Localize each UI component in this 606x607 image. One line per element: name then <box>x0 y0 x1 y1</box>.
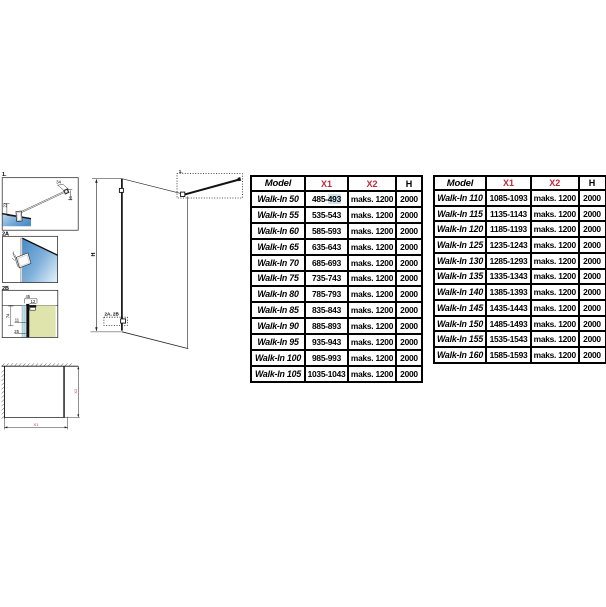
svg-text:X2: X2 <box>73 388 78 394</box>
svg-text:X1: X1 <box>34 422 40 427</box>
svg-text:1.: 1. <box>2 172 7 178</box>
svg-text:45: 45 <box>25 294 30 299</box>
svg-text:2A, 2B: 2A, 2B <box>105 312 120 317</box>
svg-text:25: 25 <box>14 329 19 334</box>
svg-text:1.: 1. <box>179 169 183 174</box>
svg-text:22: 22 <box>2 202 7 207</box>
svg-text:2B: 2B <box>2 286 9 292</box>
svg-text:11: 11 <box>15 318 20 323</box>
svg-text:H: H <box>91 253 97 257</box>
svg-text:34: 34 <box>56 180 61 185</box>
svg-text:12: 12 <box>31 299 36 304</box>
svg-text:74: 74 <box>5 313 10 318</box>
